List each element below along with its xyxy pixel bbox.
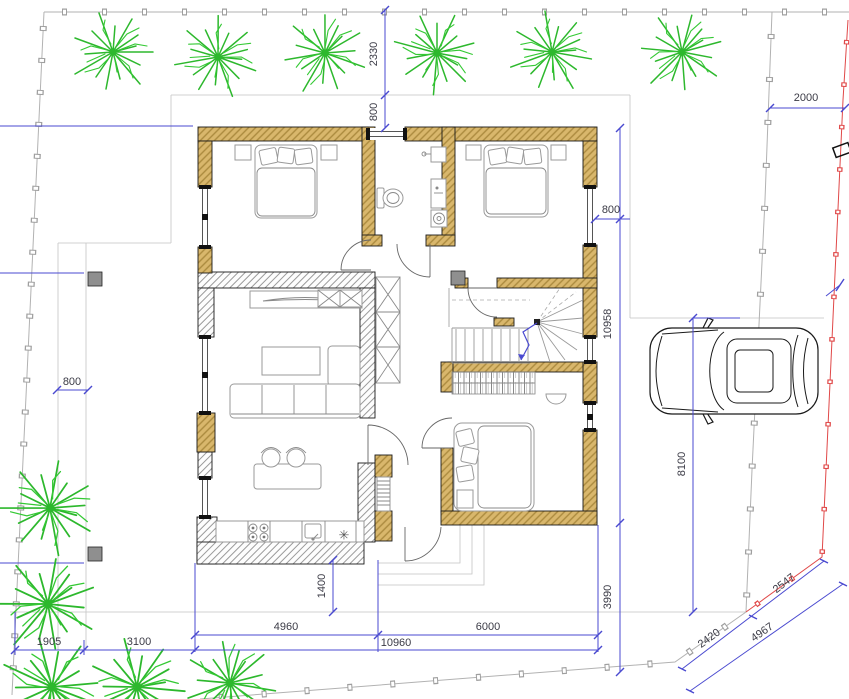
tree-icon (384, 0, 493, 107)
red-boundary-line (746, 20, 848, 612)
bedroom2-door (468, 288, 497, 317)
dim-label-800-left: 800 (63, 376, 81, 388)
tree-icon (75, 13, 153, 89)
wall-south-bedroom3 (441, 511, 597, 525)
bedroom3-door (422, 418, 452, 448)
dim-label-8100: 8100 (676, 452, 688, 476)
kitchen-counter: ✳ (216, 521, 364, 542)
dim-label-3990: 3990 (602, 585, 614, 609)
dim-label-800-top: 800 (368, 103, 380, 121)
window-top-bath (366, 128, 407, 140)
entry-door (405, 527, 441, 561)
window-west-bedroom1 (199, 185, 211, 249)
dim-label-2420: 2420 (696, 627, 723, 651)
bathroom-door (397, 244, 430, 277)
appliance-asterisk-symbol: ✳ (339, 527, 350, 542)
wall-hall-west-b (375, 511, 392, 541)
tree-icon (508, 7, 598, 95)
wall-west-living (198, 288, 214, 337)
wall-west-bedroom1 (198, 141, 212, 187)
dim-label-1400: 1400 (316, 574, 328, 598)
column-post (88, 272, 102, 286)
x-cabinet-low (318, 290, 362, 307)
furniture: ✳ (216, 145, 566, 542)
wall-living-top (198, 272, 375, 288)
dim-label-2000: 2000 (794, 92, 818, 104)
dim-label-3100: 3100 (127, 636, 151, 648)
wall-west-stub (198, 247, 212, 273)
wall-bath-left (362, 127, 375, 243)
washbasin-icon (546, 394, 566, 404)
washing-machine-icon (431, 210, 447, 227)
sink-icon (305, 524, 321, 541)
tree-icon (170, 7, 269, 105)
site-plan-drawing: ✳ (0, 0, 849, 699)
washbasin-icon (422, 147, 446, 162)
tree-icon (635, 4, 730, 98)
entrance-steps (378, 522, 484, 585)
dim-label-2330: 2330 (368, 42, 380, 66)
nightstand (457, 490, 473, 508)
dim-label-1905: 1905 (37, 636, 61, 648)
nightstand (235, 145, 251, 160)
car-mirror-icon (703, 413, 713, 424)
stair-direction-arrow (521, 323, 537, 360)
wall-east-bedroom2 (583, 141, 597, 187)
dim-label-2547: 2547 (771, 571, 798, 596)
bed-icon (484, 145, 548, 217)
x-wardrobe-tall (376, 277, 400, 383)
tree-icon (273, 0, 379, 104)
coffee-table (262, 347, 320, 375)
dining-table (254, 448, 321, 490)
column-post (451, 271, 465, 285)
dim-label-4960: 4960 (274, 621, 298, 633)
dim-label-800-right: 800 (602, 204, 620, 216)
nightstand (551, 145, 566, 160)
dim-label-10960: 10960 (381, 637, 412, 649)
tree-icon (170, 622, 289, 699)
wall-west-mid (198, 452, 212, 478)
car-top-view (650, 318, 818, 424)
car-mirror-icon (703, 318, 713, 329)
chair-icon (287, 449, 305, 467)
floor-plan-canvas: ✳ (0, 0, 849, 699)
dim-label-6000: 6000 (476, 621, 500, 633)
column-post (88, 547, 102, 561)
wardrobe (452, 372, 566, 404)
wall-top-left (198, 127, 368, 141)
window-east-stair (584, 335, 596, 364)
bed-icon (454, 423, 534, 511)
wall-east-mid (583, 245, 597, 337)
wall-bedroom2-bottom-b (497, 278, 597, 288)
dim-label-10958: 10958 (602, 309, 614, 340)
wall-top-right (405, 127, 597, 141)
sink-cabinet-icon (431, 179, 446, 208)
nightstand (321, 145, 337, 160)
toilet-icon (377, 188, 403, 208)
window-east-bedroom3 (584, 401, 596, 432)
window-west-kitchen (199, 476, 211, 519)
chair-icon (262, 449, 280, 467)
wall-west-tan-mid (197, 413, 215, 452)
wall-kitchen-bottom (197, 542, 364, 564)
wall-east-stair (583, 362, 597, 403)
wall-bedroom3-west-a (441, 362, 453, 392)
window-east-bedroom2 (584, 185, 596, 247)
wall-bedroom3-west-b (441, 448, 453, 512)
radiator-icon (377, 477, 390, 511)
bed-icon (255, 145, 317, 218)
wall-bedroom3-top (448, 362, 583, 372)
window-west-living (199, 335, 211, 415)
wall-hall-west-a (375, 455, 392, 477)
wall-stair-newel (494, 318, 514, 326)
staircase (449, 288, 583, 363)
nightstand (466, 145, 481, 160)
